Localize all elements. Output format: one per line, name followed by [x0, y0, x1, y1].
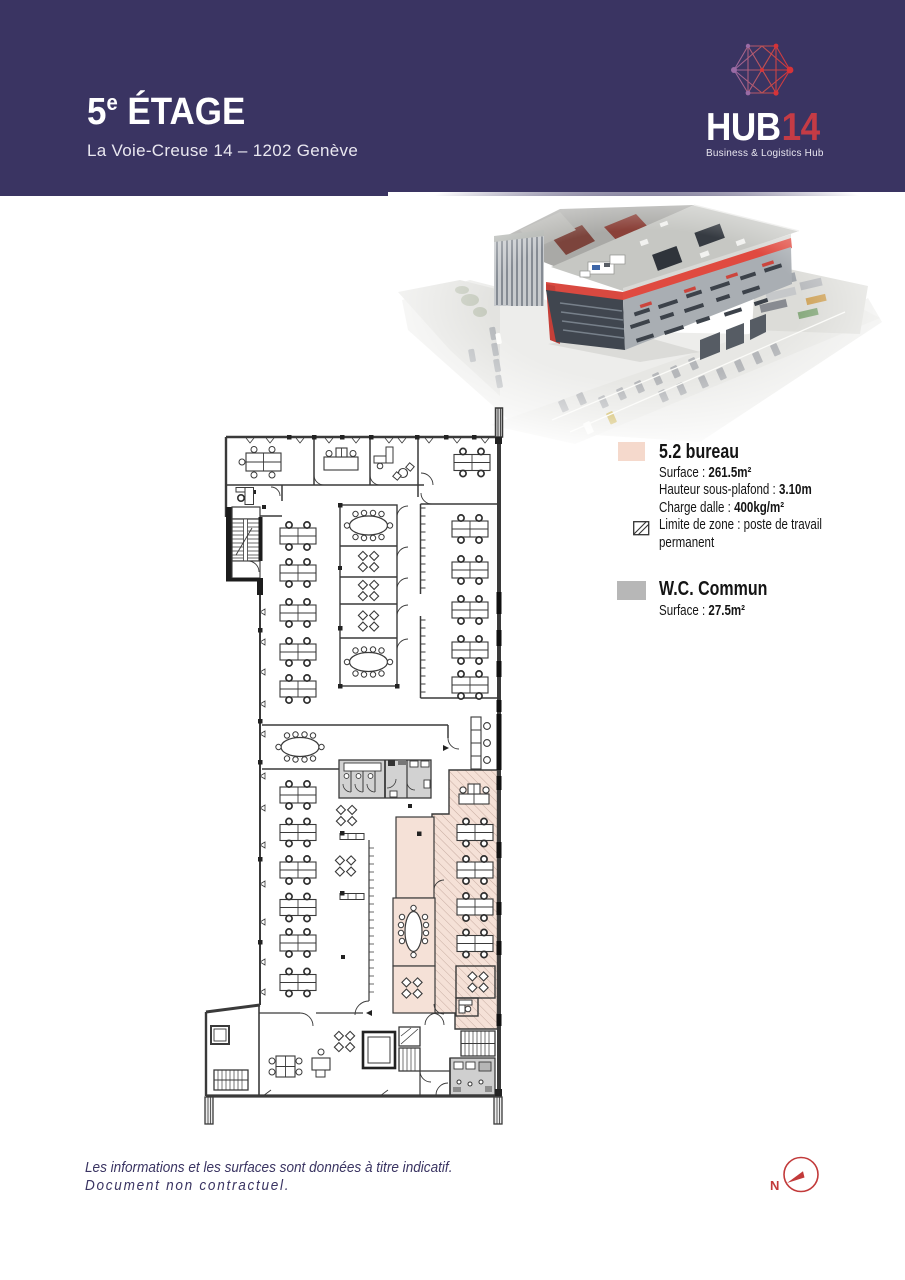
- svg-text:N: N: [770, 1178, 779, 1193]
